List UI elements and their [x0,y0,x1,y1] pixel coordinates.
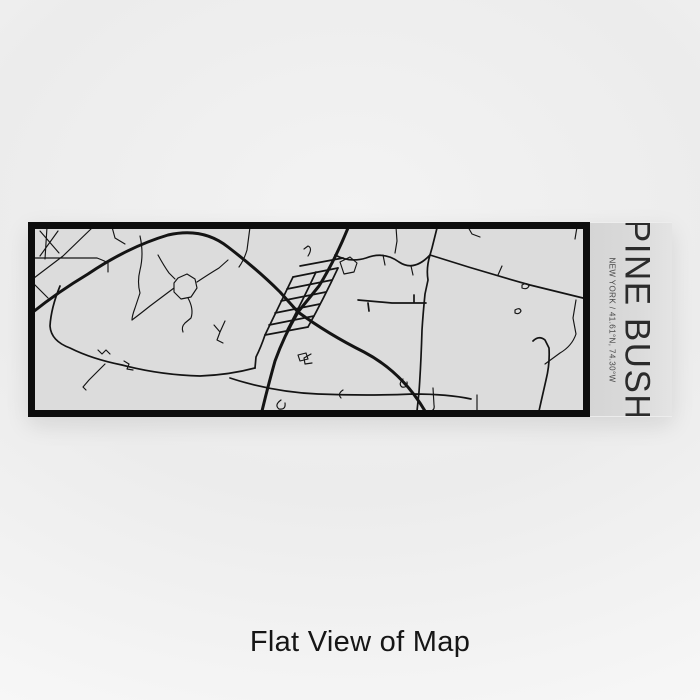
city-name-label: PINE BUSH [620,223,655,416]
street-map-svg [28,222,590,417]
view-caption: Flat View of Map [0,626,700,659]
street-map [28,222,590,417]
page-background: PINE BUSH NEW YORK / 41.61°N, 74.30°W Fl… [0,0,700,700]
map-side-panel: PINE BUSH NEW YORK / 41.61°N, 74.30°W [590,223,672,416]
map-card: PINE BUSH NEW YORK / 41.61°N, 74.30°W [28,222,672,417]
coordinates-label: NEW YORK / 41.61°N, 74.30°W [608,257,617,382]
rotated-label-group: PINE BUSH NEW YORK / 41.61°N, 74.30°W [590,223,672,416]
